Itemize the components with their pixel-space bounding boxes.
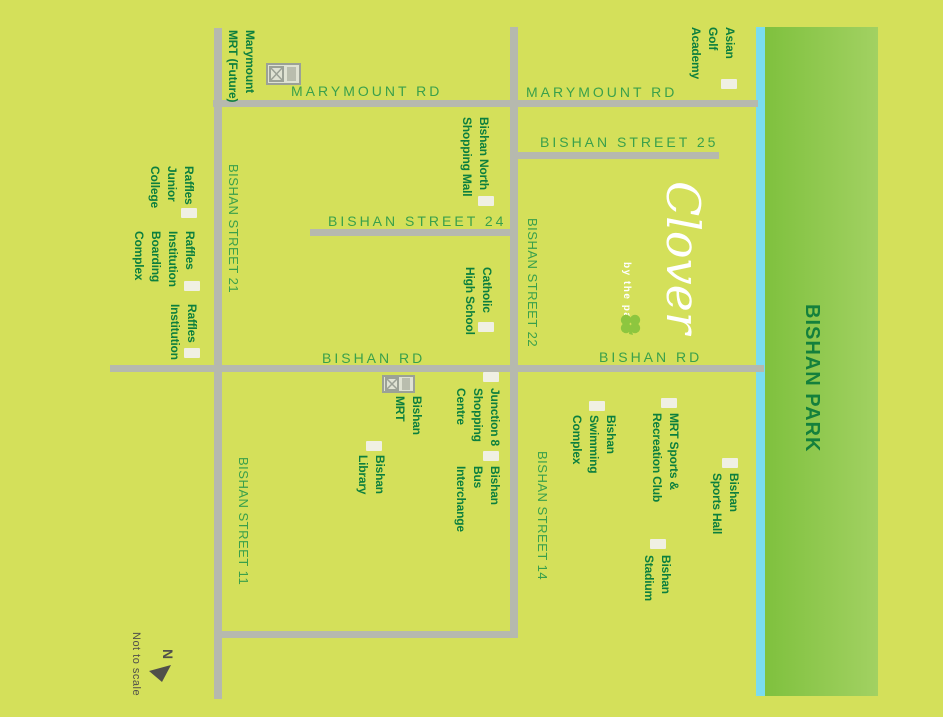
map-canvas: BISHAN PARK MARYMOUNT RD MARYMOUNT RD BI… — [0, 0, 943, 717]
street-label-bishan-street-25: BISHAN STREET 25 — [540, 134, 718, 150]
marker-junction-8 — [483, 372, 499, 382]
label-mrt-sports-recreation-club: MRT Sports & Recreation Club — [648, 413, 682, 502]
compass-arrow-icon — [147, 662, 173, 684]
label-marymount-mrt-future: Marymount MRT (Future) — [224, 30, 258, 102]
bishan-park-label: BISHAN PARK — [800, 304, 823, 452]
label-bishan-sports-hall: Bishan Sports Hall — [708, 473, 742, 534]
street-label-bishan-street-22: BISHAN STREET 22 — [524, 218, 540, 347]
street-label-bishan-street-21: BISHAN STREET 21 — [225, 164, 241, 293]
marymount-mrt-icon — [266, 63, 301, 85]
street-label-bishan-rd-east: BISHAN RD — [599, 349, 702, 365]
label-asian-golf-academy: Asian Golf Academy — [687, 27, 738, 79]
road-bishan-rd — [110, 365, 764, 372]
marker-stadium — [650, 539, 666, 549]
marker-asian-golf-academy — [721, 79, 737, 89]
label-raffles-junior-college: Raffles Junior College — [146, 166, 197, 208]
road-south-connector — [214, 631, 518, 638]
label-bishan-mrt: Bishan MRT — [391, 396, 425, 435]
marker-sports-hall — [722, 458, 738, 468]
marker-catholic-high-school — [478, 322, 494, 332]
clover-logo: Clover — [648, 181, 718, 334]
street-label-bishan-street-11: BISHAN STREET 11 — [235, 457, 251, 585]
label-junction-8-shopping-centre: Junction 8 Shopping Centre — [452, 388, 503, 446]
street-label-bishan-street-24: BISHAN STREET 24 — [328, 213, 506, 229]
road-bishan-street-24 — [310, 229, 518, 236]
compass-north-label: N — [160, 649, 176, 659]
road-bishan-street-21-11 — [214, 28, 222, 699]
clover-leaf-icon — [617, 312, 643, 336]
label-bishan-bus-interchange: Bishan Bus Interchange — [452, 466, 503, 532]
road-bishan-street-22-14 — [510, 27, 518, 636]
label-bishan-north-shopping-mall: Bishan North Shopping Mall — [458, 117, 492, 196]
marker-raffles-institution-boarding-complex — [184, 281, 200, 291]
river-strip — [756, 27, 765, 696]
marker-raffles-junior-college — [181, 208, 197, 218]
street-label-marymount-rd-west: MARYMOUNT RD — [291, 83, 442, 99]
label-bishan-library: Bishan Library — [354, 455, 388, 494]
marker-bus-interchange — [483, 451, 499, 461]
not-to-scale-label: Not to scale — [130, 632, 142, 696]
road-bishan-street-25 — [513, 152, 719, 159]
road-marymount-rd — [213, 100, 758, 107]
marker-raffles-institution — [184, 348, 200, 358]
label-bishan-stadium: Bishan Stadium — [640, 555, 674, 601]
street-label-bishan-rd-west: BISHAN RD — [322, 350, 425, 366]
marker-bishan-library — [366, 441, 382, 451]
label-bishan-swimming-complex: Bishan Swimming Complex — [568, 415, 619, 473]
marker-bishan-north-shopping-mall — [478, 196, 494, 206]
bishan-mrt-icon — [382, 375, 415, 393]
street-label-bishan-street-14: BISHAN STREET 14 — [534, 451, 550, 580]
label-raffles-institution-boarding-complex: Raffles Institution Boarding Complex — [130, 231, 198, 287]
marker-mrt-sports-club — [661, 398, 677, 408]
marker-swimming-complex — [589, 401, 605, 411]
street-label-marymount-rd-east: MARYMOUNT RD — [526, 84, 677, 100]
